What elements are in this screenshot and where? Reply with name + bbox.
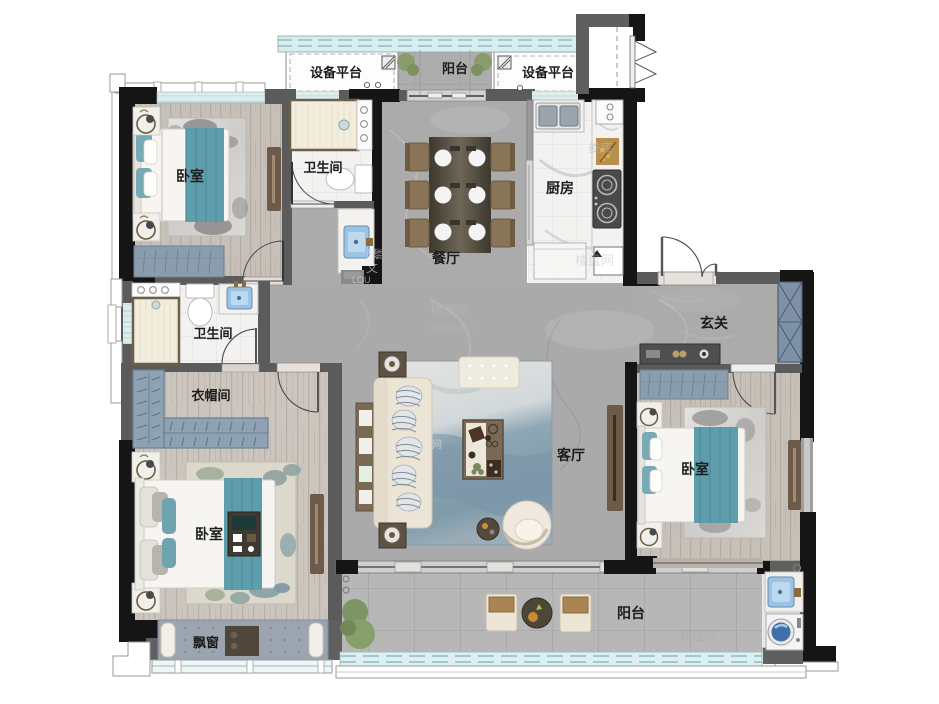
svg-text:卧室: 卧室 <box>195 526 223 542</box>
svg-text:设备平台: 设备平台 <box>310 65 362 80</box>
svg-text:阳台: 阳台 <box>442 61 468 76</box>
svg-text:楼盘网: 楼盘网 <box>575 253 614 268</box>
svg-text:飘窗: 飘窗 <box>193 635 219 650</box>
svg-text:衣帽间: 衣帽间 <box>191 388 230 403</box>
svg-text:米: 米 <box>366 247 378 261</box>
svg-text:娄底: 娄底 <box>588 140 612 155</box>
svg-text:厨房: 厨房 <box>546 180 574 196</box>
svg-text:阳台: 阳台 <box>617 605 645 621</box>
svg-text:Loupan.com: Loupan.com <box>430 323 474 332</box>
svg-text:设备平台: 设备平台 <box>522 65 574 80</box>
svg-text:楼盘网: 楼盘网 <box>430 303 469 318</box>
svg-text:楼盘网: 楼盘网 <box>680 628 716 643</box>
svg-text:卧室: 卧室 <box>681 461 709 477</box>
svg-text:LOU: LOU <box>352 275 371 285</box>
svg-text:文: 文 <box>366 260 378 275</box>
svg-text:玄关: 玄关 <box>700 315 728 331</box>
svg-text:卧室: 卧室 <box>176 168 204 184</box>
svg-text:卫生间: 卫生间 <box>193 326 232 341</box>
svg-text:餐厅: 餐厅 <box>431 250 460 266</box>
svg-text:客厅: 客厅 <box>556 447 585 463</box>
svg-text:卫生间: 卫生间 <box>303 160 342 175</box>
